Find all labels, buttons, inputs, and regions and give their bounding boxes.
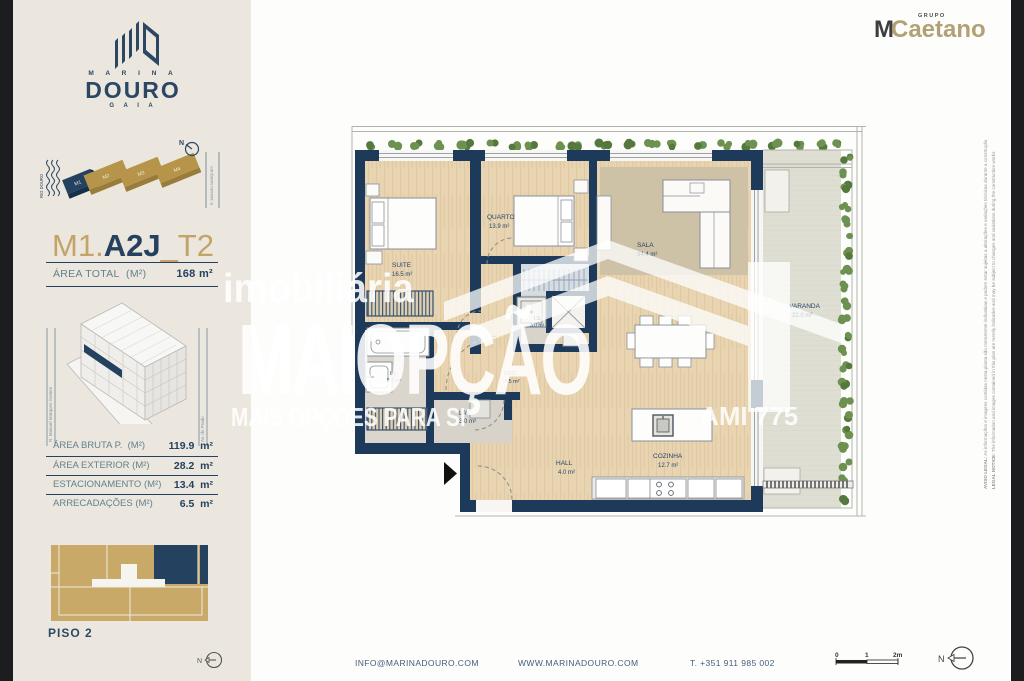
svg-text:12.7 m²: 12.7 m² xyxy=(658,463,678,469)
svg-text:HALL: HALL xyxy=(556,460,573,467)
svg-text:RIO DOURO: RIO DOURO xyxy=(40,173,44,198)
svg-text:N: N xyxy=(197,658,202,665)
svg-text:COZINHA: COZINHA xyxy=(653,453,683,460)
svg-text:1: 1 xyxy=(865,652,869,659)
svg-text:R. MANUEL MARQUES: R. MANUEL MARQUES xyxy=(210,166,214,205)
svg-text:0: 0 xyxy=(835,652,839,659)
svg-text:4.0 m²: 4.0 m² xyxy=(558,470,575,476)
svg-text:N: N xyxy=(938,654,945,664)
svg-text:2m: 2m xyxy=(893,652,903,659)
svg-text:N: N xyxy=(179,140,184,147)
svg-text:Av. do Prado: Av. do Prado xyxy=(200,416,205,442)
svg-text:R. Manuel Marques Gomes: R. Manuel Marques Gomes xyxy=(48,386,53,442)
